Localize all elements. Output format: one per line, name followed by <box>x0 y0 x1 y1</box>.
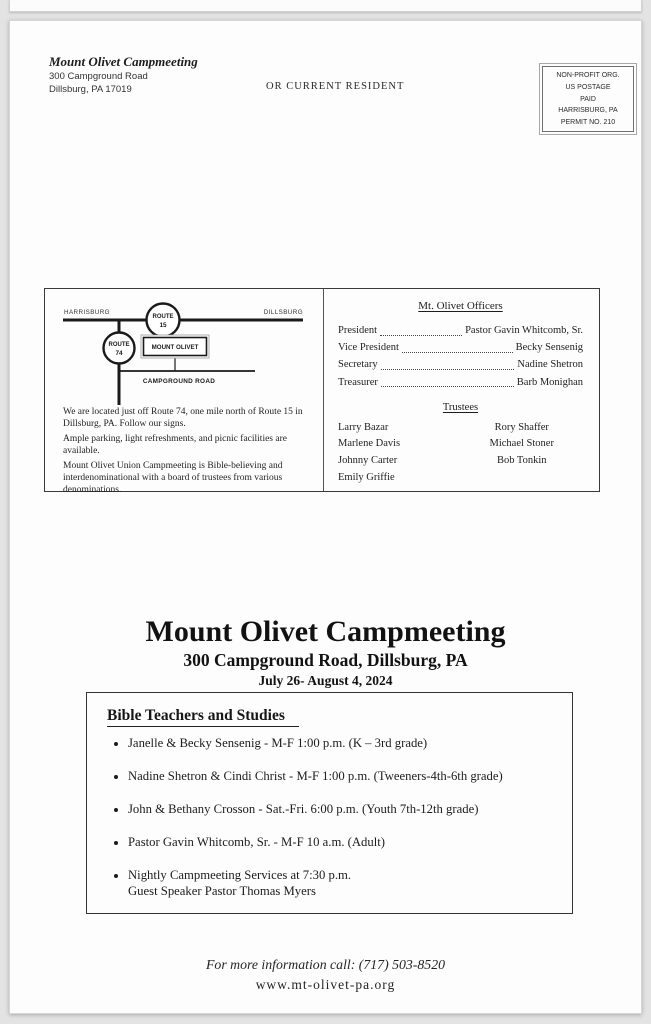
trustees-right-column: Rory Shaffer Michael Stoner Bob Tonkin <box>461 420 584 486</box>
trustee-name: Marlene Davis <box>338 436 461 453</box>
study-item-line1: Nightly Campmeeting Services at 7:30 p.m… <box>128 868 572 884</box>
officer-name: Becky Sensenig <box>516 339 583 356</box>
study-item-line1: John & Bethany Crosson - Sat.-Fri. 6:00 … <box>128 802 572 818</box>
officer-role: Secretary <box>338 356 378 373</box>
route-15-shield <box>147 304 180 337</box>
footer-block: For more information call: (717) 503-852… <box>10 956 641 993</box>
study-item: John & Bethany Crosson - Sat.-Fri. 6:00 … <box>128 802 572 818</box>
map-label-dillsburg: DILLSBURG <box>264 309 303 316</box>
trustees-list: Larry Bazar Marlene Davis Johnny Carter … <box>338 420 583 486</box>
trustee-name: Johnny Carter <box>338 453 461 470</box>
study-item-line1: Pastor Gavin Whitcomb, Sr. - M-F 10 a.m.… <box>128 835 572 851</box>
study-item: Janelle & Becky Sensenig - M-F 1:00 p.m.… <box>128 736 572 752</box>
location-map: HARRISBURG DILLSBURG ROUTE 15 ROUTE 74 M… <box>57 299 309 405</box>
dot-leader <box>381 369 515 370</box>
trustee-name: Rory Shaffer <box>461 420 584 437</box>
officers-title: Mt. Olivet Officers <box>338 300 583 312</box>
footer-phone-line: For more information call: (717) 503-852… <box>10 956 641 973</box>
officer-name: Barb Monighan <box>517 374 583 391</box>
study-item-line1: Nadine Shetron & Cindi Christ - M-F 1:00… <box>128 769 572 785</box>
recipient-line: OR CURRENT RESIDENT <box>266 81 404 92</box>
footer-website: www.mt-olivet-pa.org <box>10 976 641 993</box>
officer-row: President Pastor Gavin Whitcomb, Sr. <box>338 322 583 339</box>
route-15-number: 15 <box>159 322 167 329</box>
officer-name: Pastor Gavin Whitcomb, Sr. <box>465 322 583 339</box>
study-item-line2: Guest Speaker Pastor Thomas Myers <box>128 884 572 900</box>
info-box: HARRISBURG DILLSBURG ROUTE 15 ROUTE 74 M… <box>44 288 600 492</box>
route-74-label: ROUTE <box>109 342 130 348</box>
officer-role: Treasurer <box>338 374 378 391</box>
trustee-name: Michael Stoner <box>461 436 584 453</box>
directions-paragraph: Mount Olivet Union Campmeeting is Bible-… <box>63 461 325 496</box>
dot-leader <box>402 352 513 353</box>
campground-road-label: CAMPGROUND ROAD <box>143 378 215 385</box>
bible-studies-title: Bible Teachers and Studies <box>107 707 299 727</box>
study-item: Nightly Campmeeting Services at 7:30 p.m… <box>128 868 572 899</box>
postage-line: US POSTAGE <box>545 84 631 91</box>
study-item: Pastor Gavin Whitcomb, Sr. - M-F 10 a.m.… <box>128 835 572 851</box>
officer-row: Secretary Nadine Shetron <box>338 356 583 373</box>
previous-page-edge <box>9 0 642 12</box>
postage-line: PERMIT NO. 210 <box>545 119 631 126</box>
trustee-name: Larry Bazar <box>338 420 461 437</box>
dot-leader <box>380 335 462 336</box>
officers-column: Mt. Olivet Officers President Pastor Gav… <box>323 289 599 491</box>
event-title: Mount Olivet Campmeeting <box>10 616 641 648</box>
sender-name: Mount Olivet Campmeeting <box>49 54 198 70</box>
postage-line: HARRISBURG, PA <box>545 107 631 114</box>
officer-role: Vice President <box>338 339 399 356</box>
trustee-name: Emily Griffie <box>338 470 461 487</box>
mount-olivet-label: MOUNT OLIVET <box>152 344 199 351</box>
officer-row: Vice President Becky Sensenig <box>338 339 583 356</box>
study-item: Nadine Shetron & Cindi Christ - M-F 1:00… <box>128 769 572 785</box>
trustee-name: Bob Tonkin <box>461 453 584 470</box>
directions-text: We are located just off Route 74, one mi… <box>63 407 325 500</box>
directions-paragraph: Ample parking, light refreshments, and p… <box>63 434 325 458</box>
trustees-title: Trustees <box>338 402 583 413</box>
bible-studies-box: Bible Teachers and Studies Janelle & Bec… <box>86 692 573 914</box>
trustees-left-column: Larry Bazar Marlene Davis Johnny Carter … <box>338 420 461 486</box>
map-label-harrisburg: HARRISBURG <box>64 309 110 316</box>
postage-permit-box: NON-PROFIT ORG. US POSTAGE PAID HARRISBU… <box>542 66 634 132</box>
route-15-label: ROUTE <box>153 314 174 320</box>
officer-row: Treasurer Barb Monighan <box>338 374 583 391</box>
return-address-block: Mount Olivet Campmeeting 300 Campground … <box>49 54 198 96</box>
officer-name: Nadine Shetron <box>517 356 583 373</box>
event-dates: July 26- August 4, 2024 <box>10 673 641 689</box>
mailer-page: Mount Olivet Campmeeting 300 Campground … <box>9 20 642 1014</box>
study-item-line1: Janelle & Becky Sensenig - M-F 1:00 p.m.… <box>128 736 572 752</box>
route-74-number: 74 <box>115 350 123 357</box>
bible-studies-list: Janelle & Becky Sensenig - M-F 1:00 p.m.… <box>87 736 572 899</box>
officer-role: President <box>338 322 377 339</box>
sender-address-line2: Dillsburg, PA 17019 <box>49 83 198 96</box>
directions-paragraph: We are located just off Route 74, one mi… <box>63 407 325 431</box>
route-74-shield <box>104 333 135 364</box>
postage-line: NON-PROFIT ORG. <box>545 72 631 79</box>
event-heading: Mount Olivet Campmeeting 300 Campground … <box>10 616 641 689</box>
dot-leader <box>381 386 514 387</box>
postage-line: PAID <box>545 96 631 103</box>
event-address: 300 Campground Road, Dillsburg, PA <box>10 650 641 670</box>
sender-address-line1: 300 Campground Road <box>49 70 198 83</box>
